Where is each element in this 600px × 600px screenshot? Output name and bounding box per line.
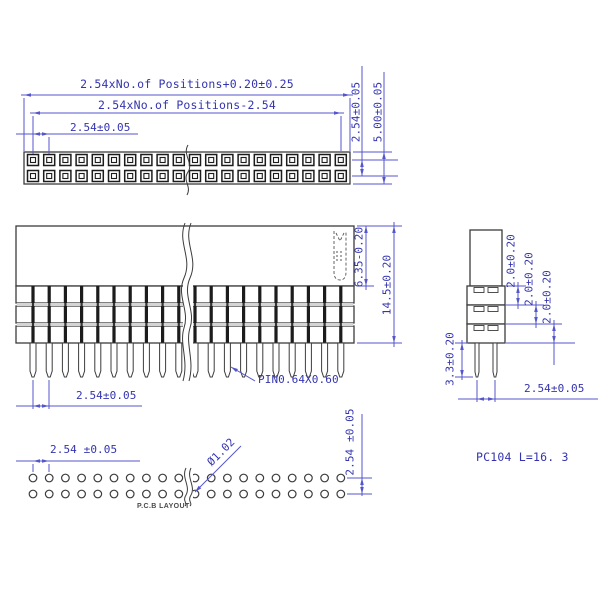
pcb-hole bbox=[126, 490, 134, 498]
pcb-hole bbox=[256, 490, 264, 498]
pcb-hole bbox=[29, 474, 37, 482]
pcb-hole bbox=[288, 490, 296, 498]
pcb-hole bbox=[321, 490, 329, 498]
pcb-hole bbox=[305, 490, 313, 498]
pcb-hole bbox=[256, 474, 264, 482]
dim-pcb-row-spacing: 2.54 ±0.05 bbox=[345, 408, 356, 475]
pcb-hole bbox=[305, 474, 313, 482]
dim-total-height: 14.5±0.20 bbox=[382, 255, 393, 316]
pcb-hole bbox=[224, 490, 232, 498]
pcb-hole bbox=[45, 490, 53, 498]
pcb-hole bbox=[143, 490, 151, 498]
pcb-hole bbox=[240, 490, 248, 498]
part-note: PC104 L=16. 3 bbox=[476, 452, 569, 464]
dim-overall-length: 2.54xNo.of Positions+0.20±0.25 bbox=[80, 79, 294, 91]
pcb-hole bbox=[126, 474, 134, 482]
pcb-hole bbox=[272, 474, 280, 482]
pcb-hole bbox=[207, 490, 215, 498]
pcb-hole bbox=[143, 474, 151, 482]
dim-row-spacing: 2.54±0.05 bbox=[351, 82, 362, 143]
pcb-hole bbox=[159, 474, 167, 482]
pcb-hole bbox=[94, 474, 102, 482]
dim-pin-span: 2.54xNo.of Positions-2.54 bbox=[98, 100, 276, 112]
dim-row3-height: 2.0±0.20 bbox=[542, 270, 553, 324]
engineering-drawing-canvas: 2.54xNo.of Positions+0.20±0.25 2.54xNo.o… bbox=[0, 0, 600, 600]
pcb-hole bbox=[110, 490, 118, 498]
pcb-hole bbox=[78, 490, 86, 498]
dim-pin-length: 3.3±0.20 bbox=[445, 332, 456, 386]
dim-pcb-pitch: 2.54 ±0.05 bbox=[50, 444, 117, 455]
pcb-hole bbox=[45, 474, 53, 482]
dim-front-pitch: 2.54±0.05 bbox=[76, 390, 137, 401]
front-view bbox=[16, 222, 402, 409]
pcb-hole bbox=[272, 490, 280, 498]
pcb-hole bbox=[62, 474, 70, 482]
pcb-hole bbox=[29, 490, 37, 498]
dim-row1-height: 2.0±0.20 bbox=[506, 234, 517, 288]
pcb-hole bbox=[240, 474, 248, 482]
pcb-hole bbox=[78, 474, 86, 482]
pcb-hole bbox=[94, 490, 102, 498]
dim-insulator-height: 6.35-0.20 bbox=[354, 227, 365, 288]
pcb-hole bbox=[337, 490, 345, 498]
pcb-hole bbox=[288, 474, 296, 482]
pcb-hole bbox=[62, 490, 70, 498]
dim-side-pin-spacing: 2.54±0.05 bbox=[524, 383, 585, 394]
pin-callout: PIN0.64X0.60 bbox=[258, 374, 339, 385]
pcb-layout-label: P.C.B LAYOUT bbox=[137, 503, 190, 510]
pcb-layout bbox=[16, 414, 372, 506]
pcb-hole bbox=[159, 490, 167, 498]
dim-row2-height: 2.0±0.20 bbox=[524, 252, 535, 306]
pcb-hole bbox=[224, 474, 232, 482]
pcb-hole bbox=[110, 474, 118, 482]
pcb-hole bbox=[175, 490, 183, 498]
dim-body-width: 5.00±0.05 bbox=[373, 82, 384, 143]
pcb-hole bbox=[175, 474, 183, 482]
dim-top-pitch: 2.54±0.05 bbox=[70, 122, 131, 133]
pcb-hole bbox=[321, 474, 329, 482]
